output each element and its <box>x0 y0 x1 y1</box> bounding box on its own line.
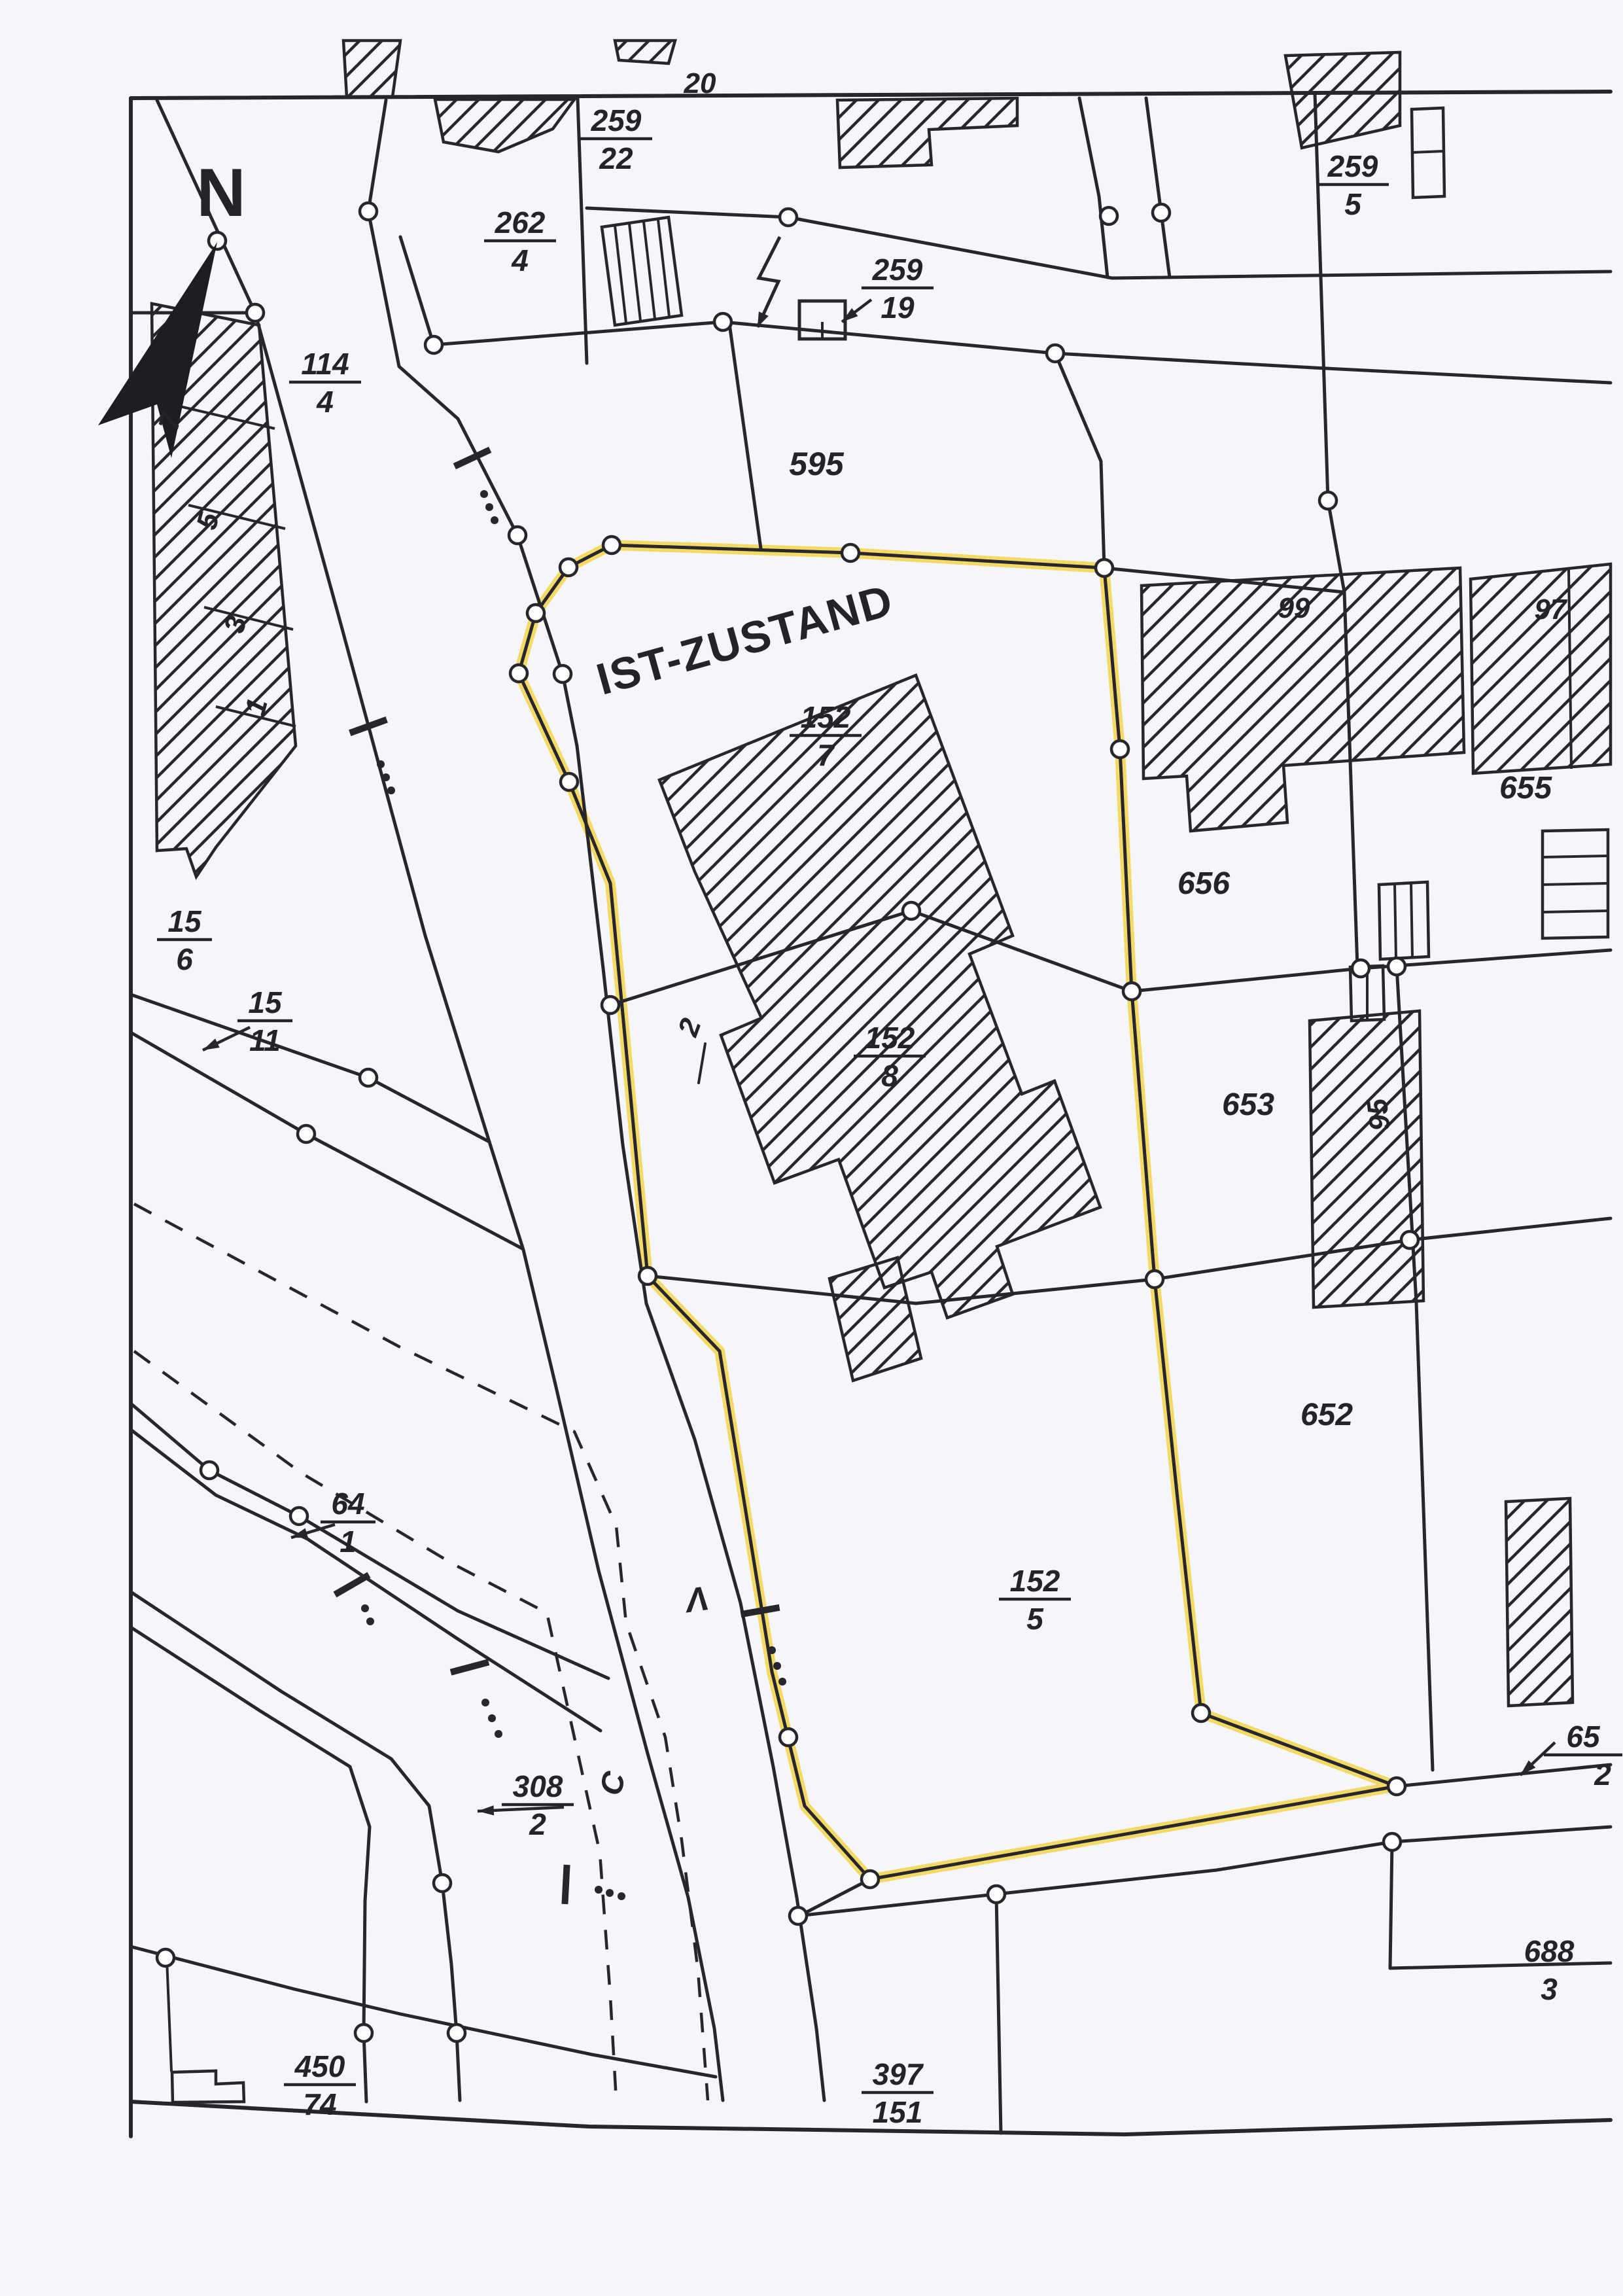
building-cut-topleft <box>343 41 400 97</box>
survey-point <box>425 336 442 353</box>
parcel-label-259-22-num: 259 <box>591 103 642 137</box>
parcel-line-20 <box>1390 1842 1392 1968</box>
survey-point <box>603 537 620 554</box>
survey-point <box>1388 958 1405 975</box>
parcel-label-152-5-den: 5 <box>1026 1602 1044 1636</box>
gate-dot <box>495 1730 502 1738</box>
building-95 <box>1310 1011 1423 1307</box>
parcel-label-262-4-den: 4 <box>511 243 529 277</box>
survey-point <box>1100 207 1117 224</box>
gate-dot <box>361 1604 369 1612</box>
parcel-label-15-11-den: 11 <box>249 1023 281 1057</box>
parcel-label-259-19-den: 19 <box>881 291 915 325</box>
parcel-label-262-4-num: 262 <box>495 205 546 239</box>
survey-point <box>360 1069 377 1086</box>
building-small-topright-inner <box>1412 151 1444 152</box>
survey-point <box>1123 983 1140 1000</box>
parcel-label-450-74-den: 74 <box>303 2087 336 2121</box>
north-label: N <box>196 155 245 231</box>
survey-point <box>298 1125 315 1142</box>
parcel-label-259-5-den: 5 <box>1344 187 1362 221</box>
building-cut-top20 <box>615 41 675 63</box>
parcel-label-64-1-den: 1 <box>340 1525 357 1559</box>
survey-point <box>554 665 571 682</box>
survey-point <box>209 232 226 249</box>
parcel-label-152-7-den: 7 <box>817 738 835 772</box>
parcel-label-450-74-num: 450 <box>294 2049 345 2083</box>
building-655-striped-inner <box>1543 911 1608 912</box>
survey-point <box>602 997 619 1014</box>
survey-point <box>1146 1271 1163 1288</box>
map-label-95: 95 <box>1361 1097 1397 1133</box>
parcel-label-259-19-num: 259 <box>872 253 923 287</box>
parcel-label-308-2-num: 308 <box>513 1769 563 1803</box>
gate-dot <box>595 1886 602 1894</box>
survey-point <box>1319 492 1336 509</box>
survey-point <box>509 527 526 544</box>
parcel-label-308-2-den: 2 <box>529 1807 546 1841</box>
map-label-656: 656 <box>1178 866 1230 901</box>
survey-point <box>247 304 264 321</box>
parcel-label-65-2-den: 2 <box>1594 1757 1611 1792</box>
survey-point <box>1352 960 1369 977</box>
parcel-label-114-4-num: 114 <box>301 347 349 381</box>
parcel-label-152-8-den: 8 <box>881 1059 898 1093</box>
survey-point <box>1384 1833 1401 1850</box>
gate-dot <box>481 1699 489 1706</box>
survey-point <box>527 605 544 622</box>
gate-dot <box>366 1617 374 1625</box>
survey-point <box>988 1886 1005 1903</box>
survey-point <box>448 2024 465 2041</box>
parcel-label-152-7-num: 152 <box>801 700 851 734</box>
parcel-label-15-6-num: 15 <box>167 904 202 938</box>
gate-dot <box>768 1646 776 1654</box>
cadastral-map-scan: 2592226241144259192595156151164115271528… <box>0 0 1623 2296</box>
survey-point <box>714 313 731 330</box>
survey-point <box>157 1949 174 1966</box>
parcel-label-259-5-num: 259 <box>1327 149 1378 183</box>
survey-point <box>561 773 578 790</box>
survey-point <box>1096 559 1113 576</box>
survey-point <box>290 1508 307 1525</box>
survey-point <box>355 2024 372 2041</box>
parcel-label-65-2-num: 65 <box>1566 1720 1601 1754</box>
gate-dot <box>773 1662 781 1670</box>
survey-point <box>434 1875 451 1892</box>
parcel-label-114-4-den: 4 <box>316 385 334 419</box>
gate-dot <box>382 773 390 781</box>
parcel-label-259-22-den: 22 <box>599 141 633 175</box>
survey-point <box>1153 204 1170 221</box>
survey-point <box>780 209 797 226</box>
survey-point <box>1047 345 1064 362</box>
building-95-annex-inner <box>1395 884 1396 958</box>
building-95-annex-inner <box>1411 883 1412 957</box>
survey-point <box>560 559 577 576</box>
map-canvas: 2592226241144259192595156151164115271528… <box>0 0 1623 2296</box>
gate-dot <box>387 786 395 794</box>
map-label-653: 653 <box>1222 1087 1274 1122</box>
parcel-label-397-151-num: 397 <box>873 2057 924 2091</box>
survey-point <box>1401 1231 1418 1248</box>
survey-point <box>1193 1704 1210 1722</box>
parcel-label-64-1-num: 64 <box>331 1487 364 1521</box>
map-label-99: 99 <box>1278 592 1310 624</box>
parcel-label-688-3-num: 688 <box>1524 1934 1575 1968</box>
gate-dot <box>778 1678 786 1686</box>
parcel-label-152-5-num: 152 <box>1010 1564 1060 1598</box>
parcel-label-15-11-num: 15 <box>248 985 283 1019</box>
survey-point <box>903 902 920 919</box>
parcel-label-15-6-den: 6 <box>176 942 193 976</box>
survey-point <box>360 203 377 220</box>
gate-dot <box>618 1892 625 1900</box>
parcel-label-152-8-num: 152 <box>865 1021 915 1055</box>
map-label-97: 97 <box>1535 593 1568 626</box>
map-label-655: 655 <box>1499 771 1552 805</box>
survey-point <box>842 544 859 561</box>
map-label-652: 652 <box>1300 1398 1353 1432</box>
gate-dot <box>480 490 488 498</box>
parcel-label-397-151-den: 151 <box>873 2095 923 2129</box>
parcel-label-688-3-den: 3 <box>1541 1972 1558 2006</box>
gate-dot <box>491 516 498 524</box>
building-655-striped-inner <box>1543 883 1608 885</box>
survey-point <box>780 1729 797 1746</box>
survey-point <box>1388 1778 1405 1795</box>
survey-point <box>510 665 527 682</box>
survey-point <box>201 1462 218 1479</box>
building-652-edge <box>1506 1498 1573 1706</box>
map-label-20: 20 <box>684 67 716 99</box>
map-label-595: 595 <box>789 446 845 482</box>
survey-point <box>639 1267 656 1284</box>
survey-point <box>1111 741 1128 758</box>
gate-dot <box>485 503 493 511</box>
gate-dot <box>377 760 385 768</box>
gate-dot <box>488 1714 496 1722</box>
survey-point <box>790 1907 807 1924</box>
survey-point <box>862 1871 879 1888</box>
building-655-striped-inner <box>1543 856 1608 857</box>
gate-dot <box>606 1889 614 1897</box>
